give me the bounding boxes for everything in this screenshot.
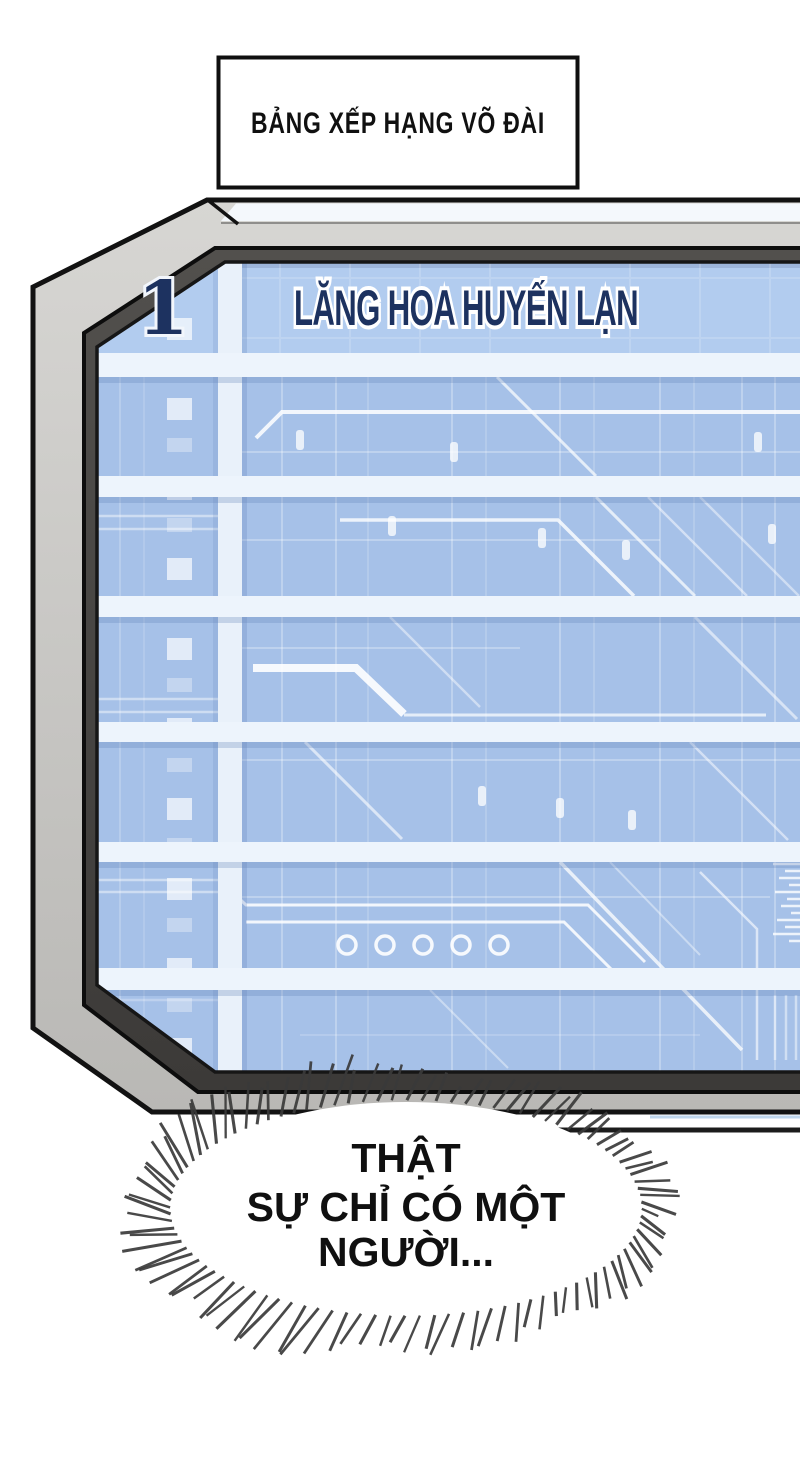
- rank-name: LĂNG HOA HUYẾN LẠN: [294, 280, 638, 336]
- rank-column-divider: [218, 262, 242, 1072]
- bezel-highlight-strip: [221, 204, 800, 222]
- comic-page: BẢNG XẾP HẠNG VÕ ĐÀI: [0, 0, 800, 1480]
- bubble-text-line1: THẬT: [351, 1135, 460, 1181]
- title-box: BẢNG XẾP HẠNG VÕ ĐÀI: [219, 58, 578, 188]
- page-title: BẢNG XẾP HẠNG VÕ ĐÀI: [251, 106, 545, 140]
- rank-number: 1: [137, 266, 189, 352]
- ranking-board: 1 LĂNG HOA HUYẾN LẠN: [33, 200, 800, 1130]
- bubble-text-line3: NGƯỜI...: [318, 1229, 494, 1275]
- bubble-text-line2: SỰ CHỈ CÓ MỘT: [247, 1184, 566, 1230]
